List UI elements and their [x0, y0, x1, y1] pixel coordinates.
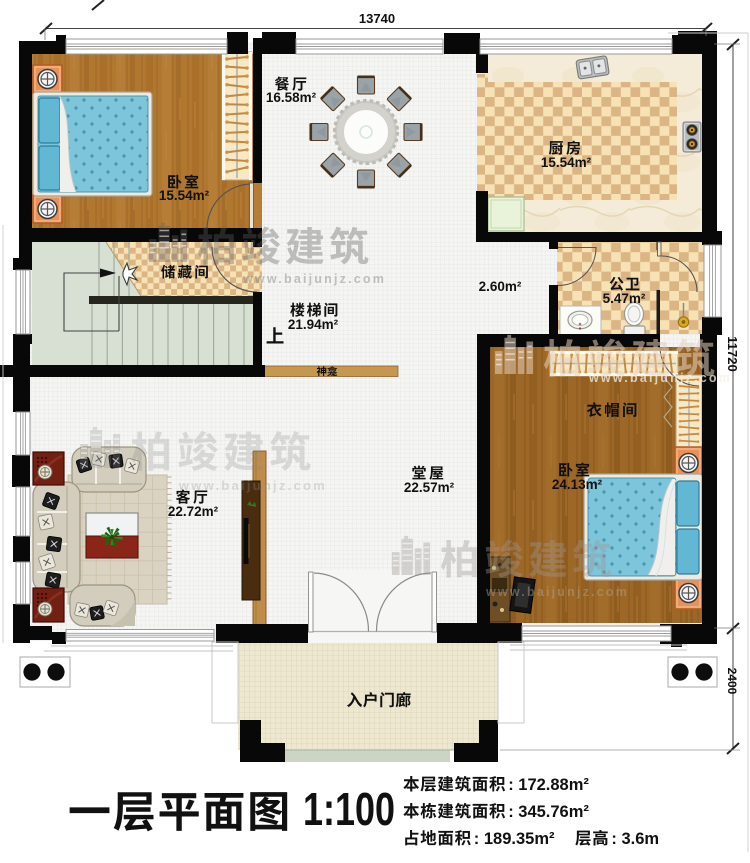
svg-text:www.baijunjz.com: www.baijunjz.com [588, 371, 732, 385]
svg-text:2400: 2400 [725, 668, 739, 695]
svg-text:21.94m²: 21.94m² [288, 317, 339, 332]
svg-text:11720: 11720 [725, 336, 740, 371]
svg-text:22.72m²: 22.72m² [168, 504, 219, 519]
svg-text:: 345.76m²: : 345.76m² [508, 803, 589, 821]
svg-text:5.47m²: 5.47m² [603, 291, 646, 306]
svg-text:1:100: 1:100 [303, 783, 395, 835]
svg-text:www.baijunjz.com: www.baijunjz.com [242, 272, 386, 286]
svg-text:2.60m²: 2.60m² [479, 279, 522, 294]
svg-text:24.13m²: 24.13m² [552, 477, 603, 492]
svg-text:22.57m²: 22.57m² [404, 480, 455, 495]
svg-text:: 172.88m²: : 172.88m² [508, 776, 589, 794]
svg-text:13740: 13740 [359, 11, 395, 26]
svg-text:16.58m²: 16.58m² [266, 90, 317, 105]
svg-text:15.54m²: 15.54m² [541, 155, 592, 170]
svg-text:: 189.35m²: : 189.35m² [474, 830, 555, 848]
svg-text:: 3.6m: : 3.6m [611, 830, 659, 848]
svg-text:15.54m²: 15.54m² [159, 188, 210, 203]
svg-text:www.baijunjz.com: www.baijunjz.com [485, 585, 629, 599]
